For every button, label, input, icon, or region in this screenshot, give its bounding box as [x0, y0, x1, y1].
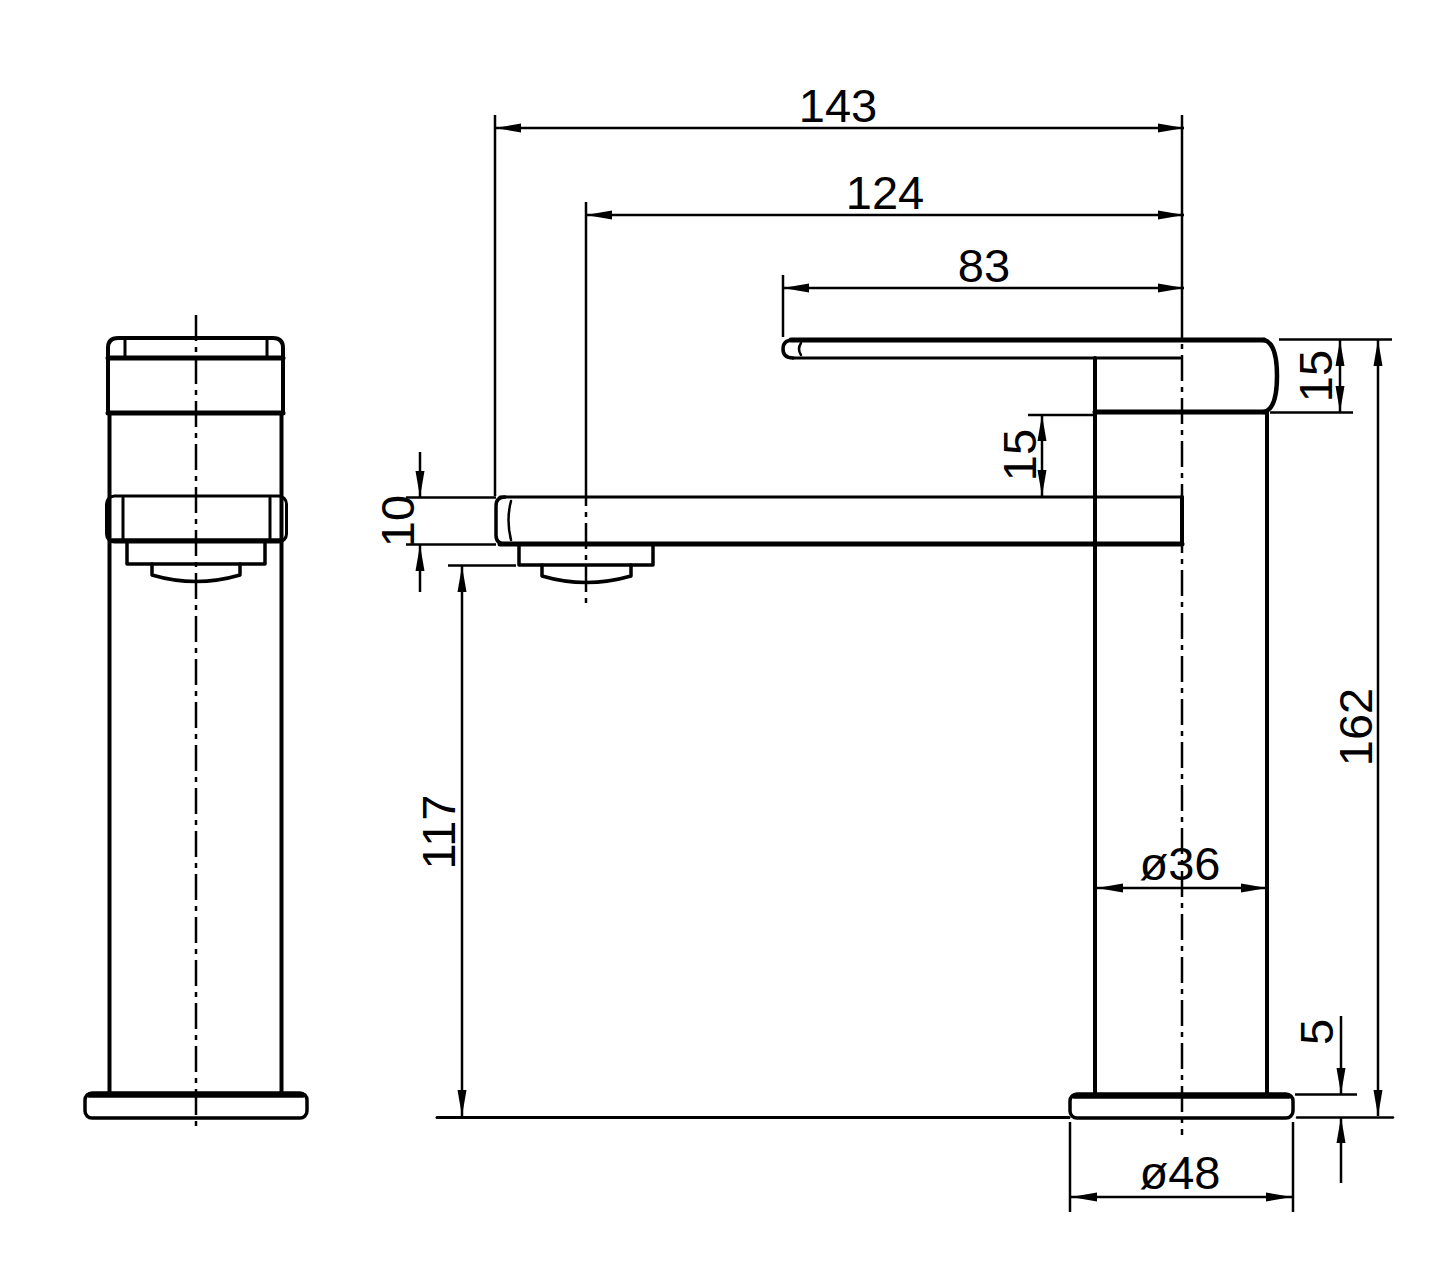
arrowhead-left — [783, 284, 809, 293]
arrowhead-left — [1071, 1193, 1097, 1202]
spout-tip-inner-arc — [509, 501, 512, 540]
dim-handle-thickness: 15 — [1270, 340, 1392, 413]
arrowhead-down — [1337, 1068, 1346, 1094]
spout-tip-cap — [496, 497, 505, 544]
dim-label-dia48: ø48 — [1140, 1146, 1221, 1199]
arrowhead-down — [458, 1090, 467, 1116]
dim-label-143: 143 — [799, 79, 877, 132]
dim-label-15-gap: 15 — [993, 429, 1046, 481]
arrowhead-left — [1097, 884, 1123, 893]
side-view — [85, 315, 307, 1130]
dim-label-124: 124 — [846, 166, 924, 219]
arrowhead-up — [416, 545, 425, 571]
arrowhead-right — [1158, 124, 1184, 133]
arrowhead-down — [1374, 1090, 1383, 1116]
dim-label-10: 10 — [371, 495, 424, 547]
arrowhead-left — [586, 211, 612, 220]
arrowhead-up — [1374, 340, 1383, 366]
dim-label-83: 83 — [958, 239, 1010, 292]
dim-label-162: 162 — [1329, 688, 1382, 766]
dim-clearance-under-spout: 117 — [412, 566, 516, 1117]
technical-drawing-canvas: 143 124 83 15 — [0, 0, 1455, 1287]
arrowhead-right — [1158, 211, 1184, 220]
drawing-svg: 143 124 83 15 — [0, 0, 1455, 1287]
arrowhead-right — [1266, 1193, 1292, 1202]
dim-label-dia36: ø36 — [1140, 837, 1221, 890]
dimensions: 143 124 83 15 — [371, 79, 1392, 1212]
arrowhead-right — [1241, 884, 1267, 893]
dim-gap-handle-spout: 15 — [993, 415, 1093, 496]
dim-reach-outlet: 124 — [586, 166, 1184, 220]
handle-right-cap — [1264, 340, 1277, 412]
front-view — [437, 115, 1393, 1135]
dim-base-height: 5 — [1290, 1016, 1357, 1183]
dim-reach-overall: 143 — [495, 79, 1184, 133]
dim-label-5: 5 — [1290, 1019, 1343, 1045]
handle-tip-inner-arc — [799, 343, 801, 355]
dim-reach-handle: 83 — [783, 239, 1184, 293]
dim-label-15-handle: 15 — [1289, 350, 1342, 402]
dim-label-117: 117 — [412, 795, 465, 870]
arrowhead-up — [1337, 1117, 1346, 1143]
dim-body-diameter: ø36 — [1097, 837, 1267, 893]
arrowhead-right — [1158, 284, 1184, 293]
dim-spout-thickness: 10 — [371, 452, 496, 592]
dim-height-overall: 162 — [1329, 340, 1383, 1116]
arrowhead-up — [458, 566, 467, 592]
arrowhead-down — [416, 471, 425, 497]
arrowhead-left — [495, 124, 521, 133]
handle-tip-cap — [783, 340, 793, 358]
dim-base-diameter: ø48 — [1070, 1122, 1293, 1212]
